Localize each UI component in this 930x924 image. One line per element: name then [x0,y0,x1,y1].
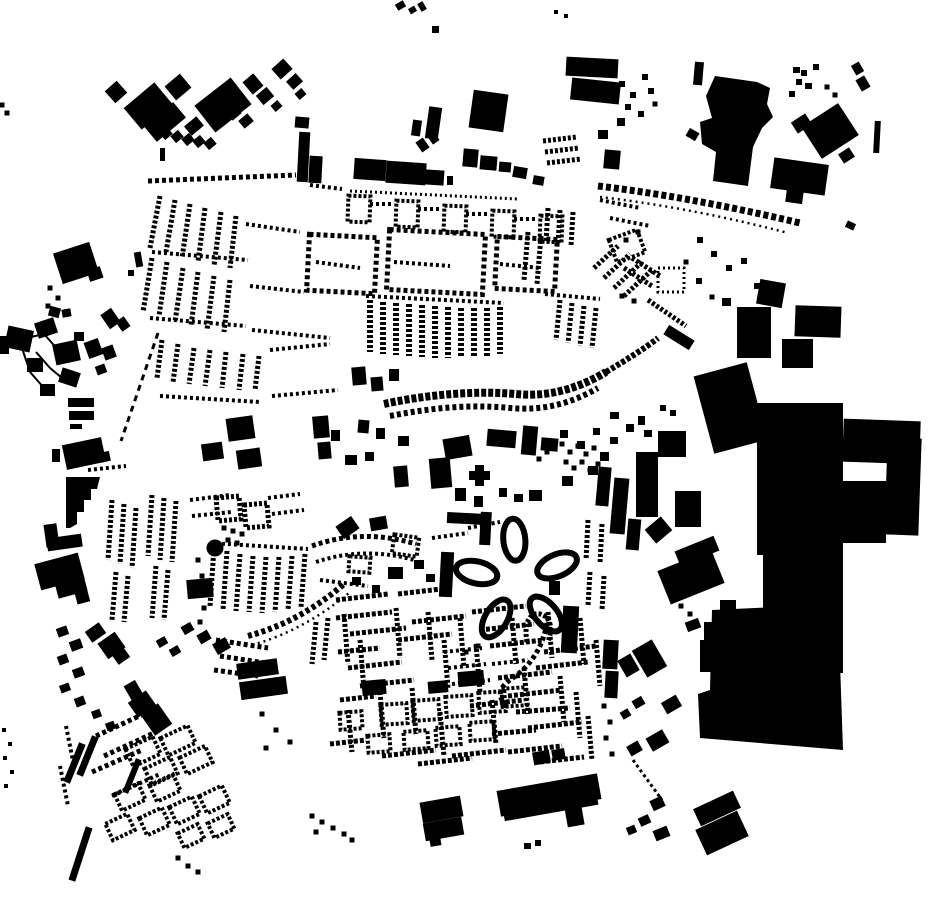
terrace-row [396,608,400,658]
small-building [310,814,315,819]
building-footprint [785,189,804,204]
terrace-row [222,352,226,388]
small-building [697,237,703,243]
terrace-row [189,348,194,384]
small-building [632,299,637,304]
building-footprint [675,491,701,527]
terrace-row [348,710,352,752]
building-footprint [170,130,183,143]
building-footprint [610,412,619,419]
building-footprint [873,121,881,153]
building-footprint [192,135,205,148]
building-footprint [236,447,262,469]
building-footprint [529,490,542,501]
building-footprint [499,161,512,172]
terrace-row [528,722,582,728]
building-footprint [566,57,619,79]
building-footprint [685,618,702,632]
terrace-row [588,572,590,606]
building-footprint [294,88,306,100]
terrace-row [262,557,266,613]
building-footprint [796,79,802,85]
building-footprint [462,148,479,167]
terrace-row [350,191,518,199]
building-footprint [514,494,523,502]
building-footprint [626,424,634,432]
building-footprint [851,61,864,75]
terrace-row [586,520,588,560]
building-footprint [395,0,406,11]
small-building [545,450,550,455]
building-footprint [626,740,643,756]
building-footprint [756,279,786,308]
building-footprint [884,437,921,535]
terrace-row [452,750,506,756]
building-footprint [95,364,107,376]
terrace-row [272,510,304,514]
small-building [833,93,838,98]
terrace-row [112,774,160,796]
terrace-row [472,606,526,612]
small-building [619,81,625,87]
terrace-row [543,137,577,141]
building-footprint [782,339,813,368]
building-footprint [610,477,630,534]
terrace-row [150,196,160,248]
terrace-row [143,258,152,312]
building-footprint [562,476,573,486]
small-building [197,590,202,595]
building-footprint [295,116,310,128]
small-building [638,111,644,117]
crescent-petal-row [502,518,528,562]
terrace-row-curved [606,338,658,372]
small-building [710,295,715,300]
building-footprint [56,625,69,637]
building-footprint [372,585,380,593]
terrace-row [223,551,227,609]
building-footprint [603,149,621,169]
terrace-courtyard-block [199,786,230,814]
small-building [564,14,568,18]
building-footprint [238,113,254,128]
small-building [240,532,245,537]
building-link [30,372,44,388]
building-footprint [105,81,128,104]
small-building [636,230,641,235]
terrace-row [580,306,584,346]
large-building [66,477,100,528]
terrace-row [312,622,316,664]
building-footprint [271,58,292,79]
crescent-petal-row [533,547,580,584]
small-building [602,704,607,709]
building-footprint [180,622,194,635]
terrace-courtyard-block [208,814,235,838]
building-footprint [398,436,409,446]
building-footprint [312,415,330,438]
building-footprint [426,574,435,582]
terrace-row [524,232,528,280]
small-building [0,103,5,108]
building-footprint [645,516,673,543]
building-footprint [610,437,618,444]
small-building [604,736,609,741]
small-building [537,457,542,462]
building-footprint [239,676,288,700]
terrace-row [492,660,528,664]
small-building [176,856,181,861]
building-footprint [353,158,386,181]
small-building [564,460,569,465]
building-footprint [68,398,94,407]
building-footprint [91,709,102,720]
building-footprint [72,666,85,678]
building-footprint [447,176,453,185]
building-footprint [389,369,399,381]
terrace-row [210,548,214,606]
small-building [476,644,481,649]
building-footprint [789,91,795,97]
building-footprint [521,425,538,455]
terrace-row [336,594,388,600]
terrace-row [568,303,572,343]
building-footprint [638,814,652,827]
building-footprint [486,429,516,448]
building-footprint [442,435,472,460]
building-footprint [793,67,800,73]
terrace-courtyard-block [348,196,371,223]
small-building [754,283,760,289]
terrace-row [490,640,544,646]
terrace-row [648,300,686,326]
small-building [56,296,61,301]
building-footprint [226,415,256,442]
building-footprint [417,1,427,12]
building-footprint [414,560,424,569]
map-canvas [0,0,930,924]
building-footprint [52,340,81,366]
building-footprint [626,825,637,836]
small-building [48,286,53,291]
small-building [200,574,205,579]
building-footprint [196,630,211,645]
small-building [231,529,236,534]
terrace-row [239,354,243,390]
terrace-courtyard-block [658,268,684,292]
terrace-courtyard-block [367,734,390,752]
building-footprint [593,428,600,435]
terrace-row [394,262,450,266]
small-building [580,460,585,465]
terrace-row [159,262,167,316]
terrace-row [250,286,304,292]
building-footprint [474,496,483,507]
building-footprint [652,826,670,842]
building-footprint [212,637,231,655]
building-footprint [85,622,106,642]
terrace-row [592,308,596,348]
building-footprint [424,169,444,185]
building-footprint [74,696,86,708]
terrace-row [160,498,164,560]
terrace-row [571,212,573,246]
building-footprint [69,638,84,652]
terrace-row [545,148,579,152]
building-footprint [317,441,331,459]
city-map-svg [0,0,930,924]
terrace-row-curved [248,584,344,636]
small-building [8,742,12,746]
building-link [44,334,60,352]
small-building [625,104,631,110]
terrace-row [121,333,158,441]
building-footprint [201,442,224,462]
building-footprint [469,90,509,133]
terrace-row [166,200,175,252]
building-footprint [638,416,645,425]
small-building [653,102,658,107]
terrace-row [236,554,240,611]
terrace-courtyard-block [444,206,467,233]
terrace-row [536,662,588,668]
building-footprint [685,128,699,141]
building-footprint [631,696,645,709]
small-building [235,541,240,546]
building-footprint [694,362,768,454]
building-footprint [429,457,453,489]
terrace-courtyard-block [244,503,269,528]
terrace-row [157,340,162,378]
terrace-row [104,732,156,756]
small-building [711,251,717,257]
small-building [5,111,10,116]
small-building [3,756,7,760]
terrace-row [432,533,468,538]
terrace-row [324,618,328,660]
small-building [260,712,265,717]
terrace-row [124,576,128,622]
building-footprint [693,62,704,86]
building-footprint [805,83,812,89]
building-footprint [59,683,71,694]
building-footprint [722,298,731,306]
terrace-row [556,300,560,340]
building-footprint [626,518,642,550]
terrace-row [275,557,279,612]
terrace-row [175,268,183,322]
small-building [554,10,558,14]
small-building [630,92,636,98]
building-footprint [532,175,544,186]
small-building [186,864,191,869]
building-footprint [74,332,84,341]
small-building [10,770,14,774]
building-footprint [636,452,658,517]
small-building [642,74,648,80]
building-footprint [770,157,829,195]
crescent-petal-row [476,595,516,642]
terrace-row [164,570,168,620]
building-footprint [376,428,385,439]
building-footprint [564,805,584,828]
building-link [50,368,62,378]
building-footprint [600,452,609,461]
building-footprint [203,137,216,150]
small-building [688,612,693,617]
small-building [560,442,565,447]
building-footprint [84,338,104,359]
small-building [825,85,830,90]
terrace-row [576,692,580,738]
building-footprint [663,325,694,350]
building-footprint [813,64,819,70]
building-footprint [632,639,667,677]
building-footprint [70,424,82,429]
small-building [624,238,629,243]
small-building [226,538,231,543]
building-footprint [475,465,484,486]
building-footprint [345,455,357,465]
building-footprint [101,344,117,360]
terrace-row [120,504,124,564]
small-building [202,606,207,611]
terrace-row [132,508,136,568]
building-footprint [780,403,843,485]
building-footprint [570,77,621,104]
building-footprint [165,74,192,101]
terrace-row [88,466,126,470]
terrace-row [537,236,541,284]
large-building [700,76,773,186]
small-building [596,462,601,467]
building-footprint [69,411,94,420]
terrace-courtyard-block [412,699,439,721]
terrace-row [340,696,376,700]
small-building [610,752,615,757]
building-footprint [61,308,71,317]
terrace-row [108,500,112,560]
terrace-courtyard-block [380,703,407,725]
building-footprint [838,147,855,163]
building-footprint [408,6,417,15]
terrace-row [172,501,176,562]
small-building [264,746,269,751]
terrace-row [301,554,305,607]
building-footprint [657,549,724,604]
terrace-row [192,512,232,516]
building-footprint [620,708,632,719]
terrace-row [310,185,342,189]
terrace-row [272,390,338,396]
building-footprint [658,431,686,457]
building-footprint [455,488,466,501]
building-footprint [415,138,429,153]
building-footprint [370,377,383,392]
small-building [741,258,747,264]
building-footprint [388,567,403,579]
building-footprint [855,75,870,91]
small-building [222,526,227,531]
building-footprint [369,516,388,532]
terrace-courtyard-block [149,774,180,801]
terrace-row [460,618,464,668]
building-footprint [270,100,282,112]
terrace-row [160,396,260,402]
small-building [648,88,654,94]
terrace-row [112,572,116,620]
small-building [350,838,355,843]
terrace-row [440,712,444,756]
small-building [592,446,597,451]
small-building [608,720,613,725]
building-footprint [512,166,528,179]
building-footprint [160,148,165,161]
building-footprint [393,465,409,487]
terrace-row [382,750,436,756]
building-footprint [737,307,771,358]
terrace-row [610,218,650,226]
building-footprint [385,161,426,186]
small-building [464,650,469,655]
building-footprint [845,220,856,230]
small-building [342,832,347,837]
building-footprint [598,130,608,139]
building-footprint [432,26,439,33]
terrace-row [191,272,198,326]
building-footprint [479,155,497,170]
crescent-petal-row [454,557,500,588]
small-building [274,728,279,733]
terrace-row [560,676,564,722]
building-footprint [365,452,374,461]
small-building [576,444,581,449]
terrace-row [210,543,308,549]
building-footprint [128,270,134,276]
terrace-row [633,760,662,800]
terrace-row [344,614,348,664]
terrace-row [148,175,296,181]
building-footprint [602,640,618,670]
building-footprint [411,119,422,136]
terrace-row [366,296,504,303]
building-footprint [184,116,204,135]
terrace-row [330,740,366,744]
small-building [320,820,325,825]
building-footprint [499,488,507,497]
large-building [698,604,843,750]
terrace-courtyard-block [105,814,134,840]
terrace-courtyard-block [492,211,515,238]
building-footprint [794,305,841,338]
terrace-row [316,262,360,268]
building-footprint [169,645,182,657]
building-footprint [560,430,568,438]
terrace-row [418,758,472,764]
building-footprint [331,430,340,441]
terrace-row [596,640,600,686]
building-footprint [357,420,369,434]
terrace-row [246,224,300,232]
terrace-row [600,524,602,564]
building-footprint [69,826,93,881]
terrace-row-curved [598,186,800,223]
terrace-row [602,576,604,610]
building-footprint [134,252,143,268]
building-footprint [297,132,311,183]
building-footprint [52,449,60,462]
terrace-courtyard-block [216,496,241,521]
